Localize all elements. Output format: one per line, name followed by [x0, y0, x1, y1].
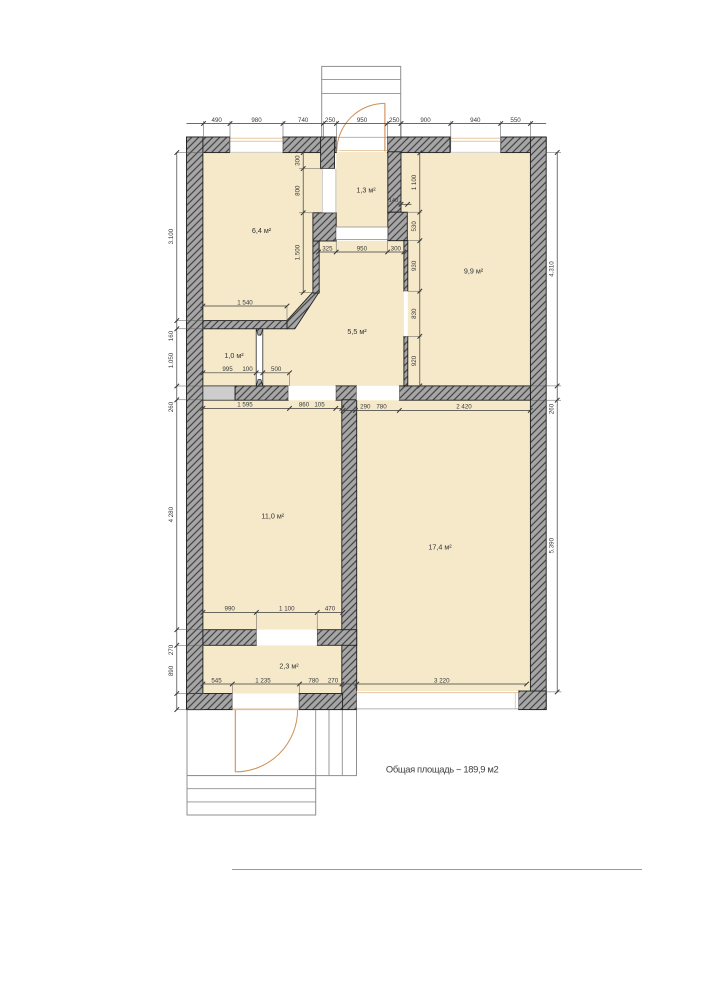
- svg-text:1 235: 1 235: [255, 677, 271, 684]
- svg-text:4 280: 4 280: [168, 506, 175, 522]
- svg-text:300: 300: [294, 155, 301, 166]
- svg-text:300: 300: [391, 245, 402, 252]
- svg-text:160: 160: [168, 330, 175, 341]
- svg-text:250: 250: [325, 117, 336, 124]
- svg-text:290: 290: [360, 404, 371, 411]
- svg-text:17,4 м²: 17,4 м²: [428, 543, 452, 552]
- svg-text:3.100: 3.100: [168, 228, 175, 244]
- svg-text:5.390: 5.390: [548, 537, 555, 553]
- svg-text:740: 740: [298, 117, 309, 124]
- svg-text:2,3 м²: 2,3 м²: [279, 662, 299, 671]
- svg-text:Общая площадь ~ 189,9 м2: Общая площадь ~ 189,9 м2: [386, 764, 499, 775]
- svg-text:980: 980: [251, 117, 262, 124]
- svg-text:830: 830: [411, 308, 418, 319]
- svg-text:990: 990: [225, 606, 236, 613]
- svg-text:105: 105: [314, 402, 325, 409]
- svg-text:5,5 м²: 5,5 м²: [347, 327, 367, 336]
- svg-text:780: 780: [376, 404, 387, 411]
- svg-text:950: 950: [357, 117, 368, 124]
- svg-text:950: 950: [357, 245, 368, 252]
- svg-text:780: 780: [308, 677, 319, 684]
- svg-text:6,4 м²: 6,4 м²: [252, 226, 272, 235]
- svg-text:470: 470: [325, 606, 336, 613]
- svg-text:545: 545: [211, 677, 222, 684]
- svg-text:9,9 м²: 9,9 м²: [464, 267, 484, 276]
- svg-text:1.050: 1.050: [168, 352, 175, 368]
- svg-text:530: 530: [411, 221, 418, 232]
- svg-text:3 220: 3 220: [434, 677, 450, 684]
- svg-text:490: 490: [212, 117, 223, 124]
- svg-text:890: 890: [168, 665, 175, 676]
- svg-text:260: 260: [548, 403, 555, 414]
- svg-text:1,3 м²: 1,3 м²: [356, 186, 376, 195]
- svg-text:270: 270: [168, 644, 175, 655]
- svg-text:900: 900: [420, 117, 431, 124]
- svg-text:1 595: 1 595: [237, 402, 253, 409]
- svg-text:140: 140: [389, 198, 399, 204]
- svg-text:325: 325: [322, 245, 333, 252]
- svg-text:2 420: 2 420: [456, 404, 472, 411]
- svg-text:1,0 м²: 1,0 м²: [224, 351, 244, 360]
- svg-text:930: 930: [411, 260, 418, 271]
- svg-text:860: 860: [299, 402, 310, 409]
- svg-text:11,0 м²: 11,0 м²: [261, 512, 284, 521]
- svg-text:4.310: 4.310: [548, 261, 555, 277]
- svg-text:1 100: 1 100: [411, 174, 418, 190]
- svg-text:920: 920: [411, 355, 418, 366]
- svg-text:100: 100: [242, 366, 253, 373]
- svg-text:1 540: 1 540: [237, 299, 253, 306]
- svg-text:500: 500: [271, 366, 282, 373]
- svg-text:250: 250: [389, 117, 400, 124]
- svg-text:940: 940: [470, 117, 481, 124]
- svg-text:270: 270: [328, 677, 339, 684]
- svg-text:550: 550: [510, 117, 521, 124]
- svg-text:260: 260: [168, 401, 175, 412]
- svg-text:1 100: 1 100: [279, 606, 295, 613]
- svg-text:995: 995: [222, 366, 233, 373]
- svg-text:1.500: 1.500: [294, 244, 301, 260]
- svg-text:800: 800: [294, 185, 301, 196]
